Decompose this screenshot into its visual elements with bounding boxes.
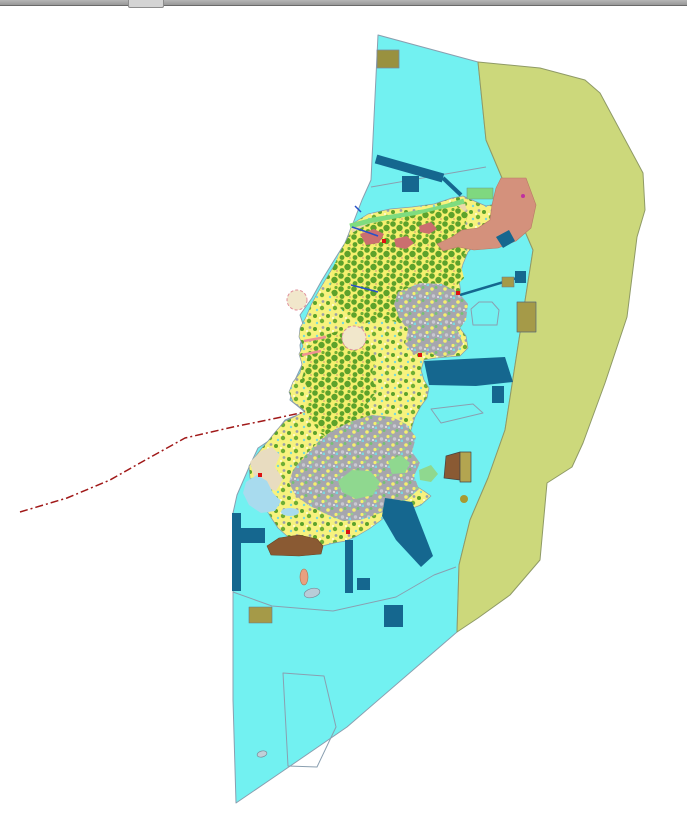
- map-viewport: [0, 0, 687, 821]
- khaki-block-ne: [502, 277, 514, 287]
- navy-block-east-2: [492, 386, 504, 403]
- scrollbar-drag-handle[interactable]: [128, 0, 164, 8]
- breakwater-t-bar-arm: [241, 528, 265, 543]
- navy-pier-bar-south: [345, 540, 353, 593]
- brown-block-se: [444, 452, 460, 480]
- red-marker-5: [346, 530, 350, 534]
- port-basin-navy: [424, 357, 513, 386]
- khaki-block-east-boundary: [517, 302, 536, 332]
- green-block-north: [467, 188, 493, 199]
- khaki-block-se: [460, 452, 471, 482]
- navy-square-south: [357, 578, 370, 590]
- khaki-block-top: [377, 50, 399, 68]
- red-marker-3: [456, 291, 460, 295]
- map-canvas[interactable]: [0, 0, 687, 821]
- tidal-water-pale-blue-2: [281, 508, 299, 516]
- red-marker-4: [418, 353, 422, 357]
- navy-block-ne: [515, 271, 526, 283]
- breakwater-t-bar-vertical: [232, 513, 241, 591]
- red-marker-1: [258, 473, 262, 477]
- window-top-edge-bar: [0, 0, 687, 6]
- designated-circle-west-1: [342, 326, 366, 350]
- magenta-dot-ne: [521, 194, 525, 198]
- olive-dot-se: [460, 495, 468, 503]
- designated-circle-west-2: [287, 290, 307, 310]
- navy-block-north: [402, 176, 419, 192]
- salmon-islet-south: [300, 569, 308, 585]
- navy-block-south-bottom: [384, 605, 403, 627]
- khaki-block-south: [249, 607, 272, 623]
- red-marker-2: [382, 239, 386, 243]
